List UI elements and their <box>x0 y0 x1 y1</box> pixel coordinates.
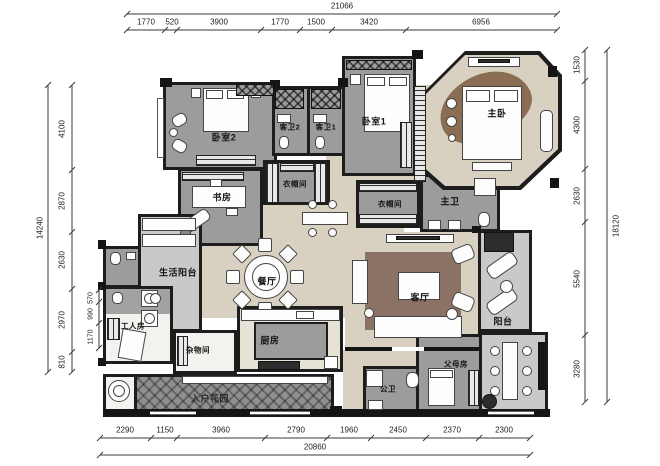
stove <box>258 361 300 370</box>
dim-left-seg: 810 <box>58 355 67 368</box>
side-table <box>169 128 178 137</box>
pillow <box>206 90 223 99</box>
dining-chair <box>226 270 240 284</box>
dim-left-seg: 2970 <box>58 311 67 329</box>
dim-top-seg: 1770 <box>137 18 155 27</box>
room-label-closet-right: 衣帽间 <box>378 199 402 210</box>
dining-chair <box>258 238 272 252</box>
dim-bottom-total: 20860 <box>304 443 326 452</box>
toilet <box>279 136 289 149</box>
window <box>488 411 534 415</box>
room-label-maid: 工人房 <box>121 321 145 332</box>
door-opening <box>392 347 424 351</box>
dim-bottom-seg: 2370 <box>443 426 461 435</box>
dim-right-seg: 2630 <box>573 187 582 205</box>
sink <box>368 400 383 410</box>
room-label-study: 书房 <box>212 191 231 204</box>
bay-window <box>157 98 164 158</box>
column <box>98 282 106 290</box>
wardrobe <box>359 183 417 192</box>
wardrobe <box>266 163 279 203</box>
wardrobe <box>107 318 120 340</box>
room-label-entry-garden: 入户花园 <box>191 392 229 405</box>
tv <box>478 59 510 63</box>
dim-right-seg: 3280 <box>573 360 582 378</box>
column <box>98 358 106 366</box>
wash-basin-inner <box>113 385 125 397</box>
dim-left-inner: 1170 <box>88 329 95 344</box>
pillow <box>367 77 385 86</box>
chair <box>226 208 238 216</box>
dim-top-seg: 520 <box>165 18 178 27</box>
entry-corridor-floor <box>343 366 365 414</box>
stool <box>446 98 457 109</box>
plant <box>482 394 497 409</box>
floor-plan: 卧室2 客卫2 客卫1 卧室1 主卧 书房 衣帽间 衣帽间 主卫 餐厅 客厅 阳… <box>0 0 660 466</box>
outdoor-chair <box>522 386 532 396</box>
dryer-drum <box>144 313 155 324</box>
floor-lamp <box>364 308 374 318</box>
pillow <box>430 370 453 378</box>
sink <box>448 220 461 230</box>
cabinet <box>346 60 412 70</box>
column <box>338 78 348 87</box>
bar-stool <box>308 228 317 237</box>
room-label-parents: 父母房 <box>444 359 468 370</box>
sink <box>126 252 136 260</box>
room-label-living: 客厅 <box>410 291 429 304</box>
sink <box>428 220 441 230</box>
room-label-master-bath: 主卫 <box>440 195 459 208</box>
shoe-cabinet <box>182 376 328 384</box>
kitchen-sink <box>296 311 314 319</box>
bar-stool <box>308 200 317 209</box>
dim-bottom-seg: 2790 <box>287 426 305 435</box>
planter <box>484 232 514 252</box>
wardrobe <box>359 214 417 225</box>
shower <box>474 178 496 196</box>
dim-bottom-seg: 2450 <box>389 426 407 435</box>
pillow <box>466 90 490 102</box>
shower <box>150 293 161 304</box>
toilet <box>110 252 121 265</box>
room-label-dining: 餐厅 <box>257 275 276 288</box>
dim-right-seg: 1530 <box>573 56 582 74</box>
column <box>160 78 172 87</box>
wardrobe <box>314 163 327 203</box>
column <box>98 240 106 249</box>
window <box>250 411 310 415</box>
dim-top-seg: 1770 <box>271 18 289 27</box>
dim-right-seg: 4300 <box>573 116 582 134</box>
stool <box>448 134 456 142</box>
bar-stool <box>328 228 337 237</box>
dresser <box>196 155 256 166</box>
shaft <box>311 89 341 109</box>
wardrobe <box>400 122 412 168</box>
dim-bottom-seg: 1960 <box>340 426 358 435</box>
counter <box>241 309 340 321</box>
shelf <box>142 234 196 247</box>
dim-top-seg: 3420 <box>360 18 378 27</box>
dining-chair <box>290 270 304 284</box>
outdoor-chair <box>490 346 500 356</box>
dim-bottom-seg: 3960 <box>212 426 230 435</box>
outdoor-table <box>502 342 518 400</box>
wardrobe <box>280 163 314 172</box>
room-label-guest-bath1: 客卫1 <box>316 122 337 133</box>
chaise <box>352 260 368 304</box>
stool <box>446 116 457 127</box>
room-label-guest-bath2: 客卫2 <box>280 122 301 133</box>
room-label-bedroom2: 卧室2 <box>212 131 237 144</box>
dim-bottom-seg: 2290 <box>116 426 134 435</box>
dim-top-seg: 3900 <box>210 18 228 27</box>
wardrobe <box>236 84 274 96</box>
dim-left-total: 14240 <box>36 217 45 239</box>
bar-counter <box>302 212 348 225</box>
side-table <box>500 280 513 293</box>
shaft <box>275 89 304 109</box>
dim-top-total: 21066 <box>331 2 353 11</box>
outdoor-chair <box>522 346 532 356</box>
dim-bottom-seg: 2300 <box>495 426 513 435</box>
window-seat <box>540 110 553 152</box>
nightstand <box>350 74 361 85</box>
column <box>548 66 557 77</box>
chair <box>210 179 222 187</box>
column <box>412 50 423 59</box>
room-label-storage: 杂物间 <box>186 345 210 356</box>
dim-right-total: 18120 <box>612 215 621 237</box>
window <box>150 411 196 415</box>
sideboard <box>538 342 546 390</box>
room-label-kitchen: 厨房 <box>260 334 279 347</box>
room-label-public-bath: 公卫 <box>380 384 396 395</box>
dim-left-seg: 2870 <box>58 192 67 210</box>
dim-top-seg: 1500 <box>307 18 325 27</box>
column <box>330 406 342 416</box>
pillow <box>389 77 407 86</box>
toilet <box>406 372 419 388</box>
shelf <box>142 218 196 231</box>
column <box>472 226 481 233</box>
tv <box>396 236 440 240</box>
fridge <box>324 356 338 369</box>
outdoor-chair <box>522 366 532 376</box>
room-label-bedroom1: 卧室1 <box>362 115 387 128</box>
dim-left-inner: 570 <box>88 292 95 304</box>
dim-right-seg: 5540 <box>573 270 582 288</box>
room-label-closet-left: 衣帽间 <box>283 179 307 190</box>
toilet <box>112 292 123 304</box>
bed-bench <box>472 162 512 171</box>
room-label-service-balcony: 生活阳台 <box>159 266 197 279</box>
dim-bottom-seg: 1150 <box>156 426 173 435</box>
bed <box>118 328 147 362</box>
dim-left-seg: 2630 <box>58 251 67 269</box>
column <box>550 178 559 188</box>
room-label-master-bedroom: 主卧 <box>487 107 506 120</box>
dim-left-seg: 4100 <box>58 120 67 138</box>
nightstand <box>191 88 201 98</box>
corridor-wardrobe <box>414 86 426 182</box>
dim-left-inner: 990 <box>88 308 95 320</box>
room-label-balcony: 阳台 <box>493 315 512 328</box>
wardrobe <box>468 370 479 406</box>
pillow <box>494 90 518 102</box>
toilet <box>478 212 490 227</box>
dim-top-seg: 6956 <box>472 18 490 27</box>
outdoor-chair <box>490 366 500 376</box>
floor-lamp <box>446 308 458 320</box>
bar-stool <box>328 200 337 209</box>
toilet <box>315 136 325 149</box>
